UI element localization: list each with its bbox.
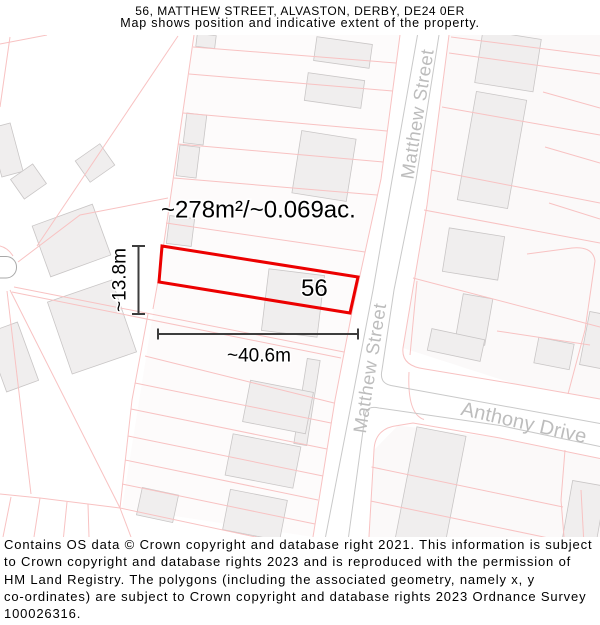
svg-text:Matthew Street: Matthew Street — [349, 301, 390, 434]
svg-text:~13.8m: ~13.8m — [110, 248, 131, 312]
svg-text:Matthew Street: Matthew Street — [396, 47, 437, 180]
svg-text:~278m²/~0.069ac.: ~278m²/~0.069ac. — [161, 197, 356, 224]
svg-text:56: 56 — [301, 275, 328, 302]
svg-text:~40.6m: ~40.6m — [227, 346, 291, 367]
